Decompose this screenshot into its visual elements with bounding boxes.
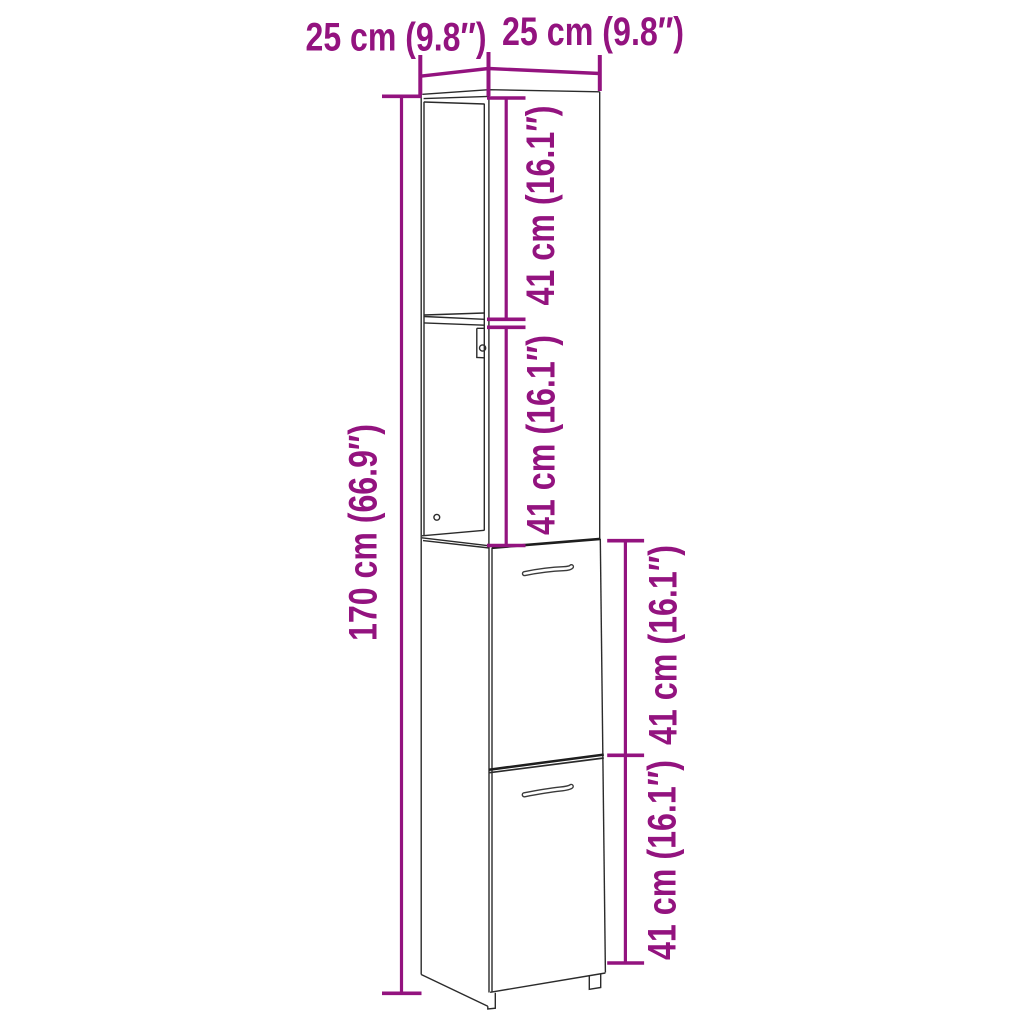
svg-text:41 cm (16.1″): 41 cm (16.1″) [642,545,686,745]
svg-text:170 cm (66.9″): 170 cm (66.9″) [341,424,385,641]
svg-text:41 cm (16.1″): 41 cm (16.1″) [520,335,564,535]
svg-text:41 cm (16.1″): 41 cm (16.1″) [641,760,685,960]
svg-text:25 cm (9.8″): 25 cm (9.8″) [306,16,487,60]
svg-text:41 cm (16.1″): 41 cm (16.1″) [519,106,563,306]
svg-text:25 cm (9.8″): 25 cm (9.8″) [502,10,684,54]
